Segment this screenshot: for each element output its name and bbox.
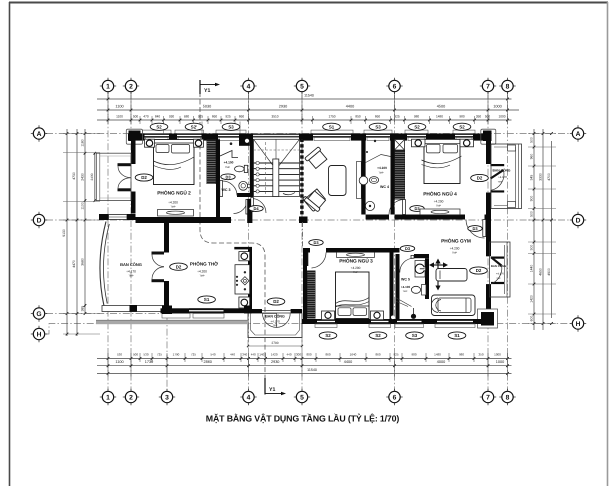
svg-text:+4.170: +4.170 [498, 175, 507, 179]
svg-text:A: A [576, 131, 581, 138]
svg-text:1100: 1100 [116, 114, 123, 118]
svg-text:Y1: Y1 [269, 387, 275, 393]
svg-text:7: 7 [486, 395, 490, 402]
svg-text:D2: D2 [476, 268, 482, 273]
svg-text:2430: 2430 [81, 173, 85, 181]
svg-text:840: 840 [155, 114, 161, 118]
svg-text:980: 980 [414, 114, 420, 118]
svg-text:1790: 1790 [173, 353, 180, 357]
svg-text:H: H [37, 332, 42, 339]
svg-text:D: D [576, 218, 581, 225]
svg-text:1100: 1100 [115, 360, 123, 364]
svg-text:925: 925 [394, 114, 400, 118]
svg-text:1480: 1480 [434, 353, 441, 357]
svg-text:6: 6 [393, 395, 397, 402]
svg-text:TMP: TMP [498, 181, 503, 184]
svg-text:TMP: TMP [199, 274, 204, 277]
svg-text:PHÒNG NGỦ 3: PHÒNG NGỦ 3 [339, 258, 373, 265]
svg-text:3: 3 [165, 395, 169, 402]
svg-text:+4.100: +4.100 [401, 285, 411, 289]
svg-text:11540: 11540 [307, 368, 317, 372]
svg-text:S3: S3 [412, 333, 418, 338]
svg-text:980: 980 [411, 353, 416, 357]
svg-text:340: 340 [242, 353, 247, 357]
svg-text:1420: 1420 [271, 353, 278, 357]
svg-text:1750: 1750 [328, 114, 335, 118]
svg-text:5: 5 [300, 395, 304, 402]
svg-text:1480: 1480 [436, 114, 443, 118]
svg-text:500: 500 [133, 353, 138, 357]
svg-text:500: 500 [133, 114, 139, 118]
svg-text:D3: D3 [313, 240, 319, 245]
svg-text:3510: 3510 [271, 114, 278, 118]
svg-text:1000: 1000 [498, 114, 505, 118]
svg-text:2860: 2860 [203, 360, 211, 364]
svg-text:1440: 1440 [530, 265, 534, 273]
svg-text:530: 530 [143, 353, 148, 357]
svg-text:1730: 1730 [145, 360, 153, 364]
svg-text:+4.200: +4.200 [434, 200, 444, 204]
svg-text:4500: 4500 [437, 104, 445, 108]
svg-text:+4.170: +4.170 [270, 320, 280, 324]
svg-text:H: H [576, 321, 581, 328]
svg-text:140: 140 [259, 353, 264, 357]
svg-text:S2: S2 [375, 333, 381, 338]
svg-text:850: 850 [355, 114, 361, 118]
svg-text:930: 930 [169, 114, 175, 118]
svg-text:725: 725 [157, 353, 162, 357]
svg-text:1000: 1000 [494, 353, 501, 357]
svg-text:WC 4: WC 4 [380, 185, 389, 189]
svg-text:PHÒNG GYM: PHÒNG GYM [441, 238, 471, 245]
svg-text:600: 600 [530, 316, 534, 322]
svg-text:11540: 11540 [304, 94, 314, 98]
svg-text:BAN CÔNG: BAN CÔNG [491, 264, 506, 268]
svg-text:4700: 4700 [547, 173, 551, 181]
svg-text:2: 2 [129, 395, 133, 402]
svg-text:960: 960 [530, 154, 534, 160]
svg-text:4650: 4650 [539, 268, 543, 276]
svg-text:500: 500 [530, 137, 534, 143]
svg-text:440: 440 [251, 353, 256, 357]
svg-text:D3: D3 [414, 206, 420, 211]
svg-text:500: 500 [530, 211, 534, 217]
svg-text:TMP: TMP [378, 172, 383, 175]
svg-text:925: 925 [225, 114, 231, 118]
svg-text:800: 800 [306, 353, 311, 357]
svg-text:D2: D2 [176, 264, 182, 269]
svg-text:1100: 1100 [115, 104, 123, 108]
svg-text:S2: S2 [156, 124, 162, 129]
svg-text:4470: 4470 [72, 260, 76, 268]
svg-text:6: 6 [393, 84, 397, 91]
svg-text:860: 860 [325, 353, 330, 357]
svg-text:BAN CÔNG: BAN CÔNG [265, 314, 285, 319]
svg-text:BAN CÔNG: BAN CÔNG [120, 262, 142, 267]
svg-text:545: 545 [530, 175, 534, 181]
svg-text:D3: D3 [225, 174, 231, 179]
svg-text:500: 500 [485, 114, 491, 118]
svg-text:Y1: Y1 [204, 88, 210, 94]
svg-text:1100: 1100 [81, 202, 85, 209]
svg-text:WC 5: WC 5 [401, 278, 410, 282]
svg-text:4400: 4400 [344, 360, 352, 364]
svg-text:2700: 2700 [271, 341, 278, 345]
svg-text:860: 860 [239, 114, 245, 118]
svg-text:4000: 4000 [437, 360, 445, 364]
svg-text:3330: 3330 [539, 173, 543, 181]
svg-text:530: 530 [117, 353, 122, 357]
svg-text:300: 300 [296, 353, 301, 357]
svg-text:TMP: TMP [452, 252, 457, 255]
svg-text:9130: 9130 [62, 229, 66, 237]
svg-text:S2': S2' [191, 124, 197, 129]
svg-text:TMP: TMP [225, 166, 230, 169]
svg-text:350: 350 [476, 114, 482, 118]
svg-text:925: 925 [198, 114, 204, 118]
svg-text:A: A [37, 131, 42, 138]
svg-text:1: 1 [106, 84, 110, 91]
svg-text:1000: 1000 [493, 104, 501, 108]
svg-text:S1: S1 [204, 297, 210, 302]
svg-text:+4.200: +4.200 [351, 266, 361, 270]
svg-text:D3: D3 [472, 226, 478, 231]
svg-text:3680: 3680 [81, 258, 85, 266]
svg-text:860: 860 [375, 353, 380, 357]
svg-text:TMP: TMP [128, 275, 133, 278]
svg-text:440: 440 [230, 353, 235, 357]
svg-text:D2: D2 [273, 299, 279, 304]
svg-text:S2: S2 [414, 124, 420, 129]
svg-text:S1: S1 [329, 124, 335, 129]
svg-text:980: 980 [459, 353, 464, 357]
svg-text:1420: 1420 [530, 295, 534, 303]
svg-text:+4.170: +4.170 [496, 273, 505, 276]
svg-text:440: 440 [286, 353, 291, 357]
svg-text:980: 980 [459, 114, 465, 118]
svg-text:7: 7 [486, 84, 490, 91]
svg-text:500: 500 [530, 245, 534, 251]
svg-text:D2: D2 [477, 176, 483, 181]
svg-text:2930: 2930 [271, 360, 279, 364]
svg-text:5030: 5030 [203, 104, 211, 108]
svg-text:TMP: TMP [436, 205, 441, 208]
svg-text:385: 385 [81, 306, 85, 312]
svg-text:4: 4 [247, 395, 251, 402]
svg-text:+4.200: +4.200 [450, 247, 460, 251]
svg-text:WC 3: WC 3 [222, 188, 231, 192]
svg-text:TMP: TMP [273, 324, 278, 327]
svg-text:TMP: TMP [496, 277, 501, 280]
svg-text:725: 725 [191, 353, 196, 357]
svg-text:8: 8 [506, 84, 510, 91]
svg-text:S1: S1 [454, 333, 460, 338]
svg-text:1000: 1000 [496, 360, 504, 364]
svg-text:BAN CÔNG: BAN CÔNG [493, 169, 511, 173]
svg-text:D4: D4 [253, 206, 259, 211]
svg-text:TMP: TMP [353, 271, 358, 274]
svg-text:860: 860 [212, 114, 218, 118]
svg-text:4900: 4900 [547, 268, 551, 276]
svg-text:MẶT BẰNG VẬT DỤNG TẦNG LẦU (TỶ: MẶT BẰNG VẬT DỤNG TẦNG LẦU (TỶ LỆ: 1/70) [206, 414, 400, 424]
svg-text:2: 2 [129, 84, 133, 91]
svg-text:1640: 1640 [350, 353, 357, 357]
svg-text:1180: 1180 [81, 139, 85, 146]
svg-text:D2: D2 [141, 175, 147, 180]
svg-text:PHÒNG NGỦ 4: PHÒNG NGỦ 4 [423, 191, 457, 198]
svg-text:+4.100: +4.100 [224, 161, 234, 165]
svg-text:900: 900 [530, 196, 534, 202]
svg-text:4: 4 [247, 84, 251, 91]
svg-text:860: 860 [375, 114, 381, 118]
svg-text:5: 5 [300, 84, 304, 91]
svg-text:TMP: TMP [170, 206, 175, 209]
svg-text:S3: S3 [228, 124, 234, 129]
svg-text:S3: S3 [375, 124, 381, 129]
svg-text:540: 540 [210, 353, 215, 357]
svg-text:PHÒNG NGỦ 2: PHÒNG NGỦ 2 [157, 190, 191, 197]
svg-text:PHÒNG THỜ: PHÒNG THỜ [190, 261, 218, 267]
svg-text:4400: 4400 [346, 104, 354, 108]
svg-text:+4.200: +4.200 [168, 201, 178, 205]
svg-text:+4.100: +4.100 [377, 166, 387, 170]
svg-text:4730: 4730 [72, 172, 76, 180]
svg-text:D: D [37, 218, 42, 225]
svg-text:+4.170: +4.170 [126, 270, 136, 274]
svg-text:G: G [36, 311, 41, 318]
svg-text:TMP: TMP [403, 290, 408, 293]
svg-text:2930: 2930 [279, 104, 287, 108]
svg-text:8: 8 [506, 395, 510, 402]
svg-text:1: 1 [106, 395, 110, 402]
svg-text:S2: S2 [459, 124, 465, 129]
svg-text:470: 470 [143, 114, 149, 118]
svg-text:D3: D3 [405, 246, 411, 251]
svg-text:+4.200: +4.200 [197, 269, 207, 273]
svg-text:2430: 2430 [90, 173, 94, 180]
svg-text:680: 680 [184, 114, 190, 118]
svg-text:S2: S2 [325, 333, 331, 338]
svg-text:350: 350 [478, 353, 483, 357]
